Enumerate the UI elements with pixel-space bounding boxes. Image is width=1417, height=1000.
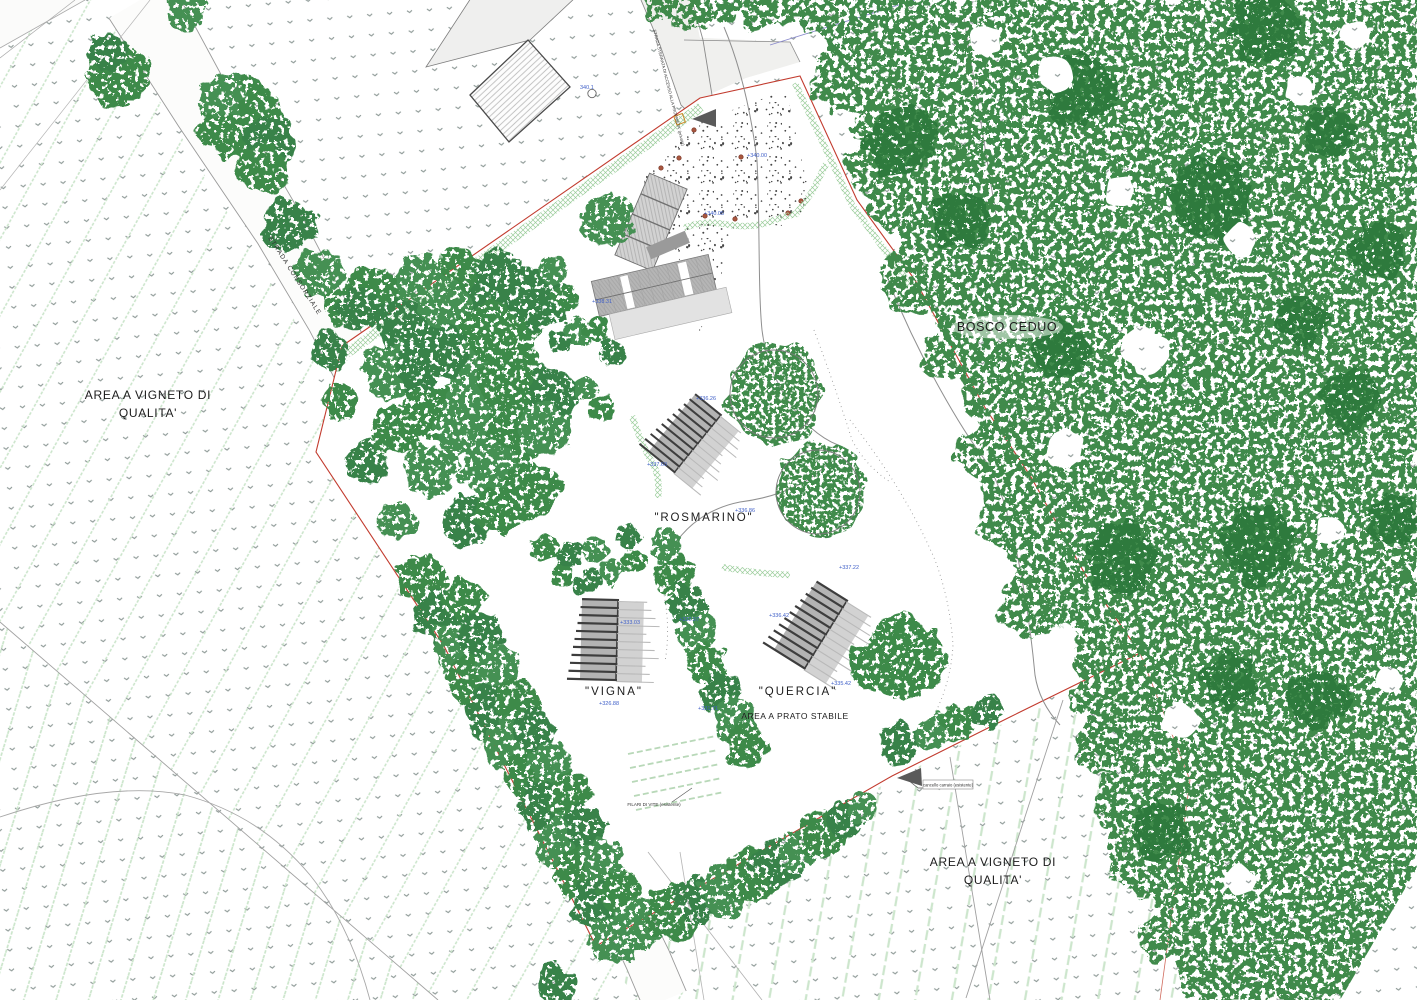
svg-text:cancello carraio (esistente): cancello carraio (esistente) [923,783,974,788]
svg-text:+336.86: +336.86 [735,508,755,514]
svg-text:+335.42: +335.42 [831,681,851,687]
svg-text:QUALITA': QUALITA' [964,873,1022,887]
svg-text:+340.05: +340.05 [704,211,724,217]
svg-text:+336.26: +336.26 [696,396,716,402]
svg-text:+337.60: +337.60 [647,462,667,468]
svg-text:AREA A VIGNETO DI: AREA A VIGNETO DI [85,388,211,402]
svg-text:AREA A PRATO STABILE: AREA A PRATO STABILE [741,711,848,721]
svg-text:+333.03: +333.03 [620,620,640,626]
svg-text:+326.88: +326.88 [599,701,619,707]
svg-text:QUALITA': QUALITA' [119,406,177,420]
svg-text:+340.00: +340.00 [747,153,767,159]
svg-text:AREA A VIGNETO DI: AREA A VIGNETO DI [930,855,1056,869]
svg-text:"VIGNA": "VIGNA" [585,686,643,698]
svg-text:+332.97: +332.97 [679,617,699,623]
svg-text:+337.22: +337.22 [839,565,859,571]
svg-text:BOSCO CEDUO: BOSCO CEDUO [957,320,1057,334]
svg-text:FILARI DI VITE (esistente): FILARI DI VITE (esistente) [627,802,681,807]
svg-text:"QUERCIA": "QUERCIA" [759,686,838,698]
svg-text:+336.42: +336.42 [769,613,789,619]
svg-text:340.1: 340.1 [580,85,594,91]
svg-text:+331.71: +331.71 [698,706,718,712]
svg-text:+338.31: +338.31 [592,299,612,305]
